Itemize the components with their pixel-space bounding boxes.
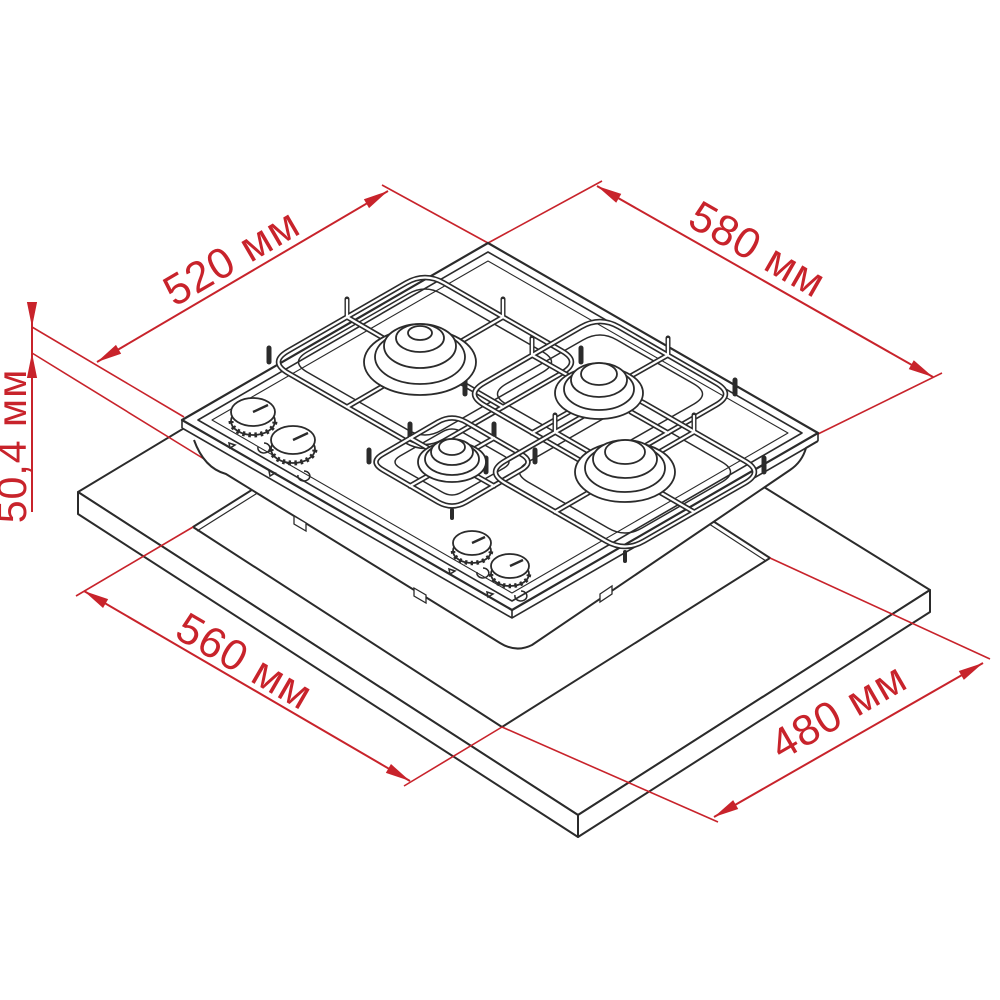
hob-installation-drawing: 520 мм 580 мм 50,4 мм 560 мм 480 мм [0, 0, 1000, 1000]
ext-580-right [818, 373, 942, 434]
ext-520-right [382, 185, 488, 243]
dimension-label-50-4: 50,4 мм [0, 369, 35, 524]
ext-hob-bottom-plane [32, 353, 209, 462]
dimension-label-520: 520 мм [155, 199, 308, 316]
ext-hob-top-plane [32, 327, 184, 417]
dimension-diagram: 520 мм 580 мм 50,4 мм 560 мм 480 мм [0, 0, 1000, 1000]
dimension-label-580: 580 мм [681, 192, 834, 308]
dimension-hob-height-50-4: 50,4 мм [0, 303, 35, 523]
ext-580-left [488, 181, 602, 243]
